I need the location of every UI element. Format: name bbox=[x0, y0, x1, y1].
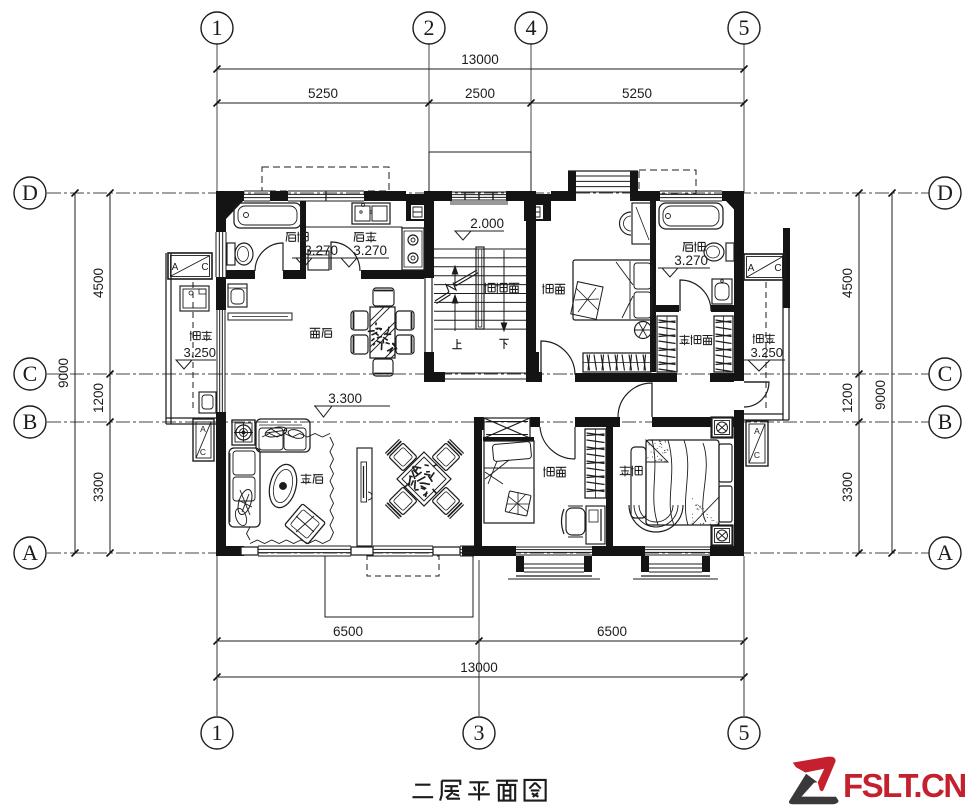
svg-text:A: A bbox=[754, 426, 760, 436]
svg-text:A: A bbox=[748, 263, 755, 274]
svg-text:C: C bbox=[23, 361, 38, 386]
svg-text:3.270: 3.270 bbox=[674, 253, 708, 268]
svg-text:A: A bbox=[22, 540, 38, 565]
svg-text:5: 5 bbox=[739, 15, 750, 40]
svg-text:A: A bbox=[937, 540, 953, 565]
svg-text:C: C bbox=[754, 450, 760, 460]
svg-text:6500: 6500 bbox=[333, 624, 363, 639]
svg-text:3300: 3300 bbox=[91, 472, 106, 502]
svg-text:13000: 13000 bbox=[461, 52, 499, 67]
svg-text:FSLT.CN: FSLT.CN bbox=[843, 767, 966, 804]
svg-text:4500: 4500 bbox=[840, 268, 855, 298]
svg-text:1200: 1200 bbox=[91, 383, 106, 413]
svg-text:B: B bbox=[23, 409, 38, 434]
svg-text:3: 3 bbox=[474, 720, 485, 745]
svg-text:C: C bbox=[774, 263, 781, 274]
svg-text:9000: 9000 bbox=[56, 358, 71, 388]
svg-text:6500: 6500 bbox=[597, 624, 627, 639]
svg-text:4500: 4500 bbox=[91, 268, 106, 298]
svg-text:9000: 9000 bbox=[873, 380, 888, 410]
svg-text:5: 5 bbox=[739, 720, 750, 745]
svg-text:3.270: 3.270 bbox=[353, 243, 387, 258]
svg-text:2.000: 2.000 bbox=[470, 216, 504, 231]
svg-text:4: 4 bbox=[526, 15, 537, 40]
svg-text:2500: 2500 bbox=[465, 86, 495, 101]
svg-text:3300: 3300 bbox=[840, 472, 855, 502]
svg-text:D: D bbox=[22, 180, 38, 205]
svg-text:1: 1 bbox=[212, 15, 223, 40]
svg-text:1200: 1200 bbox=[840, 383, 855, 413]
svg-text:A: A bbox=[200, 424, 206, 434]
svg-text:C: C bbox=[938, 361, 953, 386]
svg-text:1: 1 bbox=[212, 720, 223, 745]
svg-text:3.250: 3.250 bbox=[750, 345, 783, 360]
svg-text:3.300: 3.300 bbox=[328, 391, 362, 406]
svg-text:5250: 5250 bbox=[622, 86, 652, 101]
svg-text:5250: 5250 bbox=[308, 86, 338, 101]
svg-text:A: A bbox=[172, 262, 179, 273]
svg-text:C: C bbox=[201, 262, 208, 273]
svg-text:B: B bbox=[938, 409, 953, 434]
svg-text:2: 2 bbox=[424, 15, 435, 40]
svg-text:D: D bbox=[937, 180, 953, 205]
svg-text:C: C bbox=[200, 447, 206, 457]
svg-text:3.250: 3.250 bbox=[183, 345, 216, 360]
